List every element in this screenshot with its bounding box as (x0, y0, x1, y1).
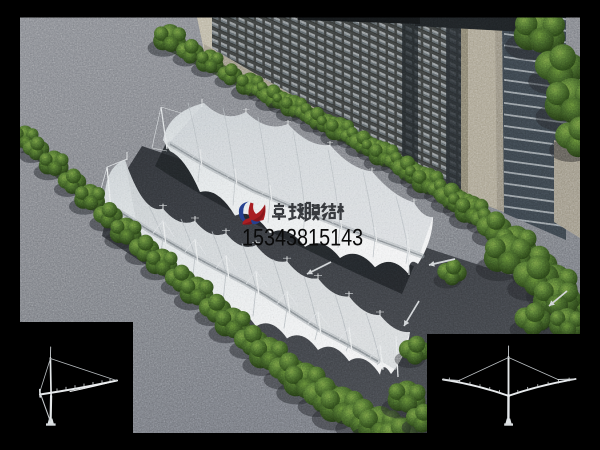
svg-text:15343815143: 15343815143 (242, 224, 363, 251)
